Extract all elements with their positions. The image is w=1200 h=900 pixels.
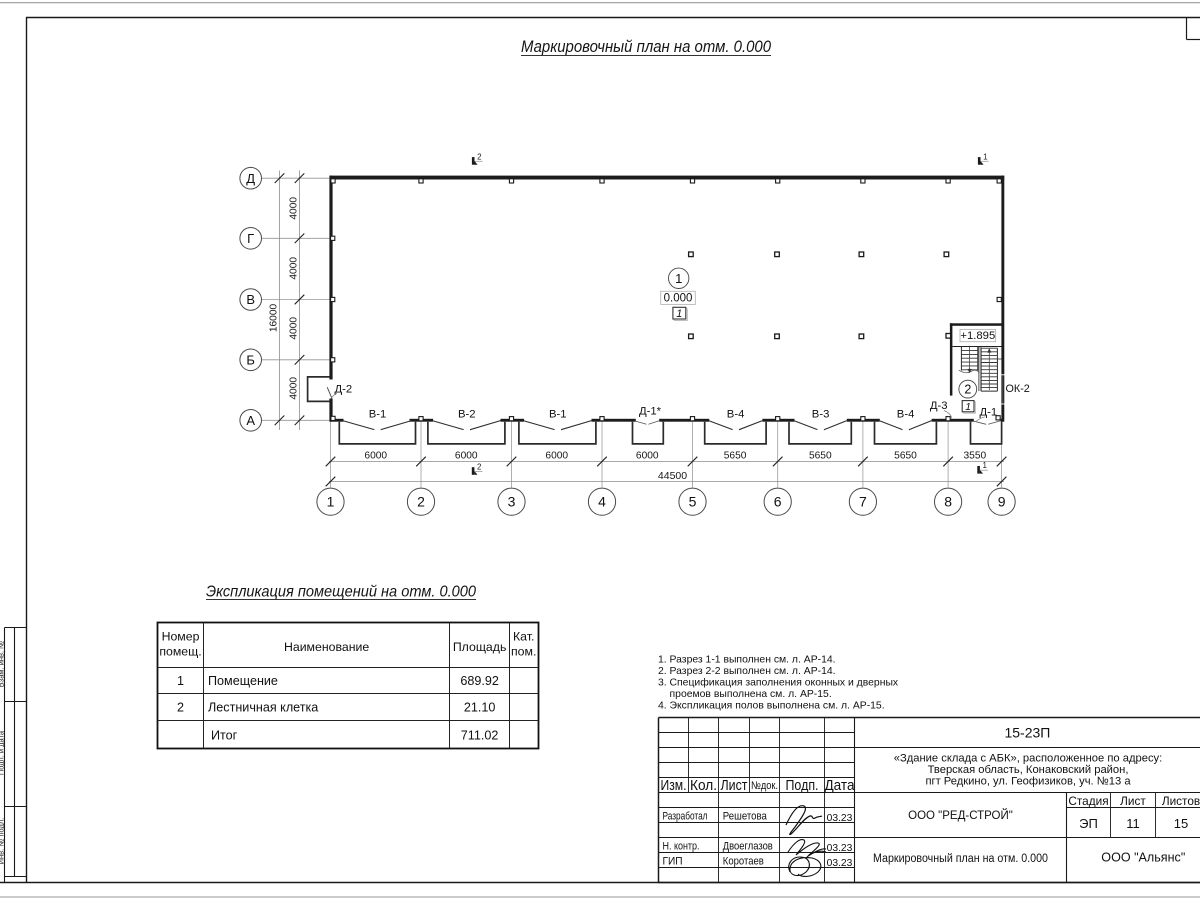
svg-text:ООО "Альянс": ООО "Альянс" [1101,851,1185,865]
svg-text:0.000: 0.000 [664,292,693,304]
svg-text:Номер: Номер [162,630,200,644]
svg-text:Кол.: Кол. [690,778,717,794]
svg-text:Инв. № подл.: Инв. № подл. [0,818,6,865]
svg-text:4000: 4000 [289,317,300,340]
svg-text:Взам. инв. №: Взам. инв. № [0,641,6,687]
svg-text:1: 1 [327,494,335,510]
svg-text:В-3: В-3 [812,408,830,420]
svg-text:ОК-2: ОК-2 [1006,383,1030,395]
svg-text:44500: 44500 [658,470,687,482]
svg-text:6: 6 [774,494,782,510]
svg-text:4000: 4000 [289,257,300,280]
svg-text:№док.: №док. [751,780,778,792]
svg-text:2: 2 [177,701,184,715]
svg-text:Итог: Итог [211,729,238,743]
svg-text:3550: 3550 [964,450,987,461]
svg-text:2: 2 [964,383,971,397]
svg-text:2: 2 [477,462,482,471]
svg-text:Маркировочный план на отм. 0.0: Маркировочный план на отм. 0.000 [873,853,1048,865]
svg-text:1: 1 [983,152,988,161]
svg-text:3: 3 [508,494,516,510]
svg-text:ООО "РЕД-СТРОЙ": ООО "РЕД-СТРОЙ" [908,809,1013,822]
svg-text:5650: 5650 [894,450,917,461]
svg-text:6000: 6000 [636,450,659,461]
svg-text:Листов: Листов [1162,794,1200,808]
svg-text:Тверская область, Конаковский: Тверская область, Конаковский район, [928,764,1129,776]
svg-text:1: 1 [177,674,184,688]
svg-text:1: 1 [965,402,971,413]
svg-text:проемов выполнена см. л. АР-15: проемов выполнена см. л. АР-15. [658,689,832,700]
svg-text:689.92: 689.92 [460,674,499,688]
svg-text:Подп. и дата: Подп. и дата [0,730,6,775]
svg-text:Д: Д [246,171,255,186]
svg-text:Дата: Дата [825,778,856,794]
svg-text:Лист: Лист [721,778,748,794]
svg-text:Лист: Лист [1120,794,1146,808]
svg-text:2. Разрез 2-2 выполнен см. л.: 2. Разрез 2-2 выполнен см. л. АР-14. [658,666,836,677]
svg-text:Кат.: Кат. [513,630,534,644]
svg-text:Площадь: Площадь [453,640,507,654]
svg-text:6000: 6000 [364,450,387,461]
svg-text:Стадия: Стадия [1068,794,1108,808]
svg-text:«Здание склада с АБК», располо: «Здание склада с АБК», расположенное по … [894,753,1162,765]
svg-text:Помещение: Помещение [208,674,278,688]
svg-text:Изм.: Изм. [661,778,687,794]
svg-text:1. Разрез 1-1 выполнен см. л.: 1. Разрез 1-1 выполнен см. л. АР-14. [658,655,836,666]
svg-text:Д-1*: Д-1* [639,405,662,417]
svg-text:Д-1: Д-1 [979,406,997,418]
svg-text:16000: 16000 [269,304,280,333]
svg-text:Двоеглазов: Двоеглазов [723,841,773,853]
svg-text:1: 1 [982,461,987,470]
svg-text:+1.895: +1.895 [960,330,995,342]
svg-text:03.23: 03.23 [827,843,853,854]
svg-text:помещ.: помещ. [159,645,201,659]
svg-text:15-23П: 15-23П [1004,725,1050,741]
svg-text:5650: 5650 [724,450,747,461]
svg-text:4000: 4000 [289,377,300,400]
svg-text:пом.: пом. [511,645,536,659]
svg-text:ЭП: ЭП [1079,816,1098,831]
svg-text:7: 7 [859,494,867,510]
svg-text:5650: 5650 [809,450,832,461]
svg-text:03.23: 03.23 [827,813,853,824]
svg-text:Маркировочный план на отм. 0.0: Маркировочный план на отм. 0.000 [521,38,771,56]
svg-text:Н. контр.: Н. контр. [663,841,700,853]
svg-text:В-1: В-1 [549,408,567,420]
svg-text:15: 15 [1174,816,1188,831]
svg-text:Коротаев: Коротаев [723,855,764,867]
svg-text:5: 5 [689,494,697,510]
svg-text:8: 8 [944,494,952,510]
svg-text:1: 1 [676,308,682,320]
svg-text:711.02: 711.02 [461,729,499,743]
svg-text:пгт Редкино, ул. Геофизиков, у: пгт Редкино, ул. Геофизиков, уч. №13 а [925,776,1131,788]
svg-text:6000: 6000 [455,450,478,461]
svg-text:03.23: 03.23 [827,858,853,869]
svg-text:6000: 6000 [545,450,568,461]
svg-text:4000: 4000 [289,197,300,220]
svg-text:11: 11 [1126,816,1140,831]
svg-text:4: 4 [598,494,606,510]
svg-text:Б: Б [246,352,255,367]
svg-text:В-2: В-2 [458,408,476,420]
svg-text:1: 1 [675,271,682,286]
svg-text:Решетова: Решетова [723,810,768,822]
svg-text:ГИП: ГИП [663,855,683,867]
svg-text:Д-2: Д-2 [335,384,353,396]
svg-text:Разработал: Разработал [663,810,708,822]
svg-text:Д-3: Д-3 [930,400,948,412]
svg-text:2: 2 [477,152,482,161]
svg-text:В-4: В-4 [897,408,915,420]
svg-text:А: А [246,413,255,428]
svg-text:2: 2 [417,494,425,510]
svg-text:В-1: В-1 [369,408,387,420]
svg-text:Г: Г [247,231,254,246]
svg-text:Наименование: Наименование [284,640,369,654]
svg-text:Лестничная клетка: Лестничная клетка [208,701,318,715]
svg-text:4. Экспликация полов выполнена: 4. Экспликация полов выполнена см. л. АР… [658,701,885,712]
svg-text:9: 9 [998,494,1006,510]
svg-text:Подп.: Подп. [786,778,819,794]
svg-text:В-4: В-4 [727,408,745,420]
svg-text:21.10: 21.10 [464,701,496,715]
svg-text:3. Спецификация заполнения око: 3. Спецификация заполнения оконных и две… [658,677,899,689]
svg-text:В: В [246,292,255,307]
svg-text:Экспликация помещений на отм.: Экспликация помещений на отм. 0.000 [206,584,476,601]
